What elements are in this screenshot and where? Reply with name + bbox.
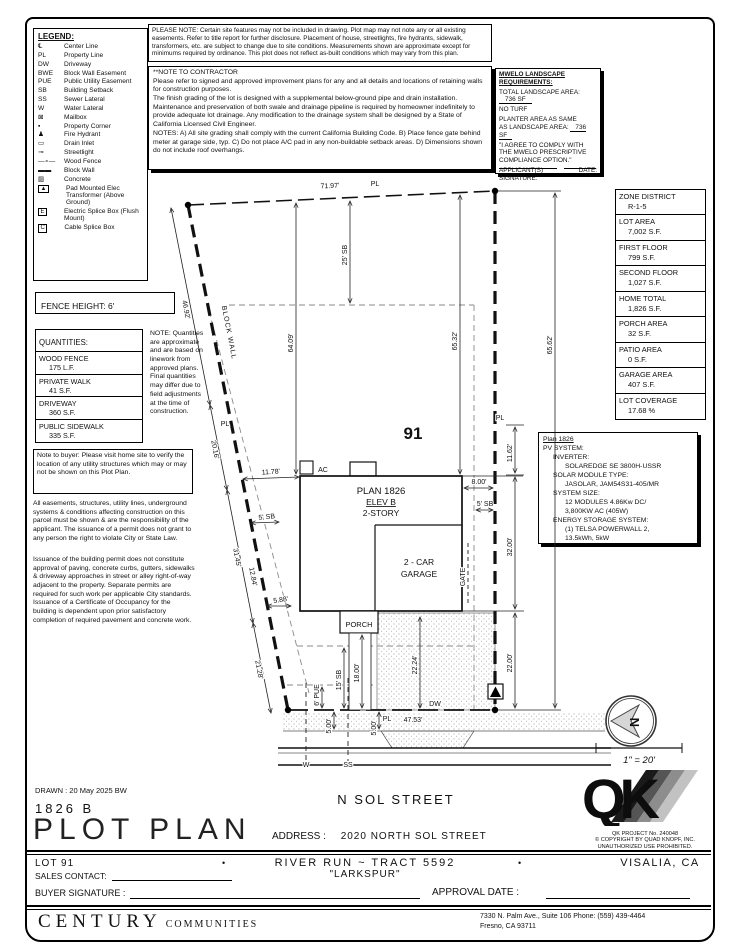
elev-label: ELEV B (366, 497, 396, 507)
svg-text:31.45': 31.45' (231, 548, 241, 568)
concrete-icon: ▨ (38, 176, 64, 183)
svg-text:W: W (303, 762, 310, 769)
svg-text:15' SB: 15' SB (336, 669, 343, 690)
property-corner (285, 707, 291, 713)
mwelo-total-value: 736 SF (499, 96, 532, 104)
svg-text:5.88': 5.88' (273, 596, 289, 605)
legend-item: —∘—Wood Fence (38, 158, 145, 165)
mwelo-total: TOTAL LANDSCAPE AREA: 736 SF (499, 89, 597, 105)
driveway-apron (381, 731, 474, 748)
svg-text:71.97': 71.97' (320, 183, 339, 191)
stat-row: ZONE DISTRICTR-1-5 (615, 189, 706, 216)
legend-item: DWDriveway (38, 61, 145, 68)
legend-item: ℄Center Line (38, 43, 145, 50)
streetlight-icon: ⊸ (38, 149, 64, 156)
date-line[interactable] (564, 167, 596, 169)
office-contact: 7330 N. Palm Ave., Suite 106 Phone: (559… (480, 912, 645, 932)
qk-copyright: © COPYRIGHT BY QUAD KNOPF, INC. (582, 837, 708, 843)
contractor-note-box: **NOTE TO CONTRACTOR Please refer to sig… (148, 66, 492, 170)
site-drawing: 71.97' PL 25' SB 64.09' 65.32' 65.62' 11… (163, 173, 613, 818)
buyer-signature-line[interactable] (130, 897, 420, 899)
svg-text:GARAGE: GARAGE (401, 569, 438, 579)
ac-pad (300, 461, 313, 474)
svg-text:65.62': 65.62' (547, 336, 554, 355)
contractor-note-p1: Please refer to signed and approved impr… (153, 78, 487, 95)
svg-text:5' SB: 5' SB (258, 513, 275, 522)
address-label: ADDRESS : (272, 831, 326, 842)
address-row: ADDRESS : 2020 NORTH SOL STREET (272, 831, 487, 842)
contractor-note-title: **NOTE TO CONTRACTOR (153, 69, 487, 78)
mwelo-title: MWELO LANDSCAPE REQUIREMENTS: (499, 71, 597, 87)
svg-text:5.00': 5.00' (326, 719, 333, 734)
block-wall-easement-symbol: BWE (38, 70, 64, 77)
street-lines (278, 748, 611, 765)
legend-item: SBBuilding Setback (38, 87, 145, 94)
legend-item: ▭Drain Inlet (38, 140, 145, 147)
garage-label: 2 - CAR (404, 557, 434, 567)
fire-hydrant-icon: ♟ (38, 131, 64, 138)
please-note-box: PLEASE NOTE: Certain site features may n… (148, 24, 492, 62)
street-name: N SOL STREET (337, 792, 454, 807)
office-address: 7330 N. Palm Ave., Suite 106 Phone: (559… (480, 912, 645, 922)
building-setback-symbol: SB (38, 87, 64, 94)
cable-splice-box-icon: C (38, 224, 47, 233)
bullet: • (222, 858, 225, 868)
svg-text:22.00': 22.00' (507, 654, 514, 673)
qk-logo-block: QK QK PROJECT No. 240048 © COPYRIGHT BY … (582, 766, 708, 850)
qk-logo: QK (582, 766, 708, 826)
buyer-signature-label: BUYER SIGNATURE : (35, 888, 125, 898)
house-bay (350, 462, 376, 476)
builder-logo: CENTURY COMMUNITIES (38, 911, 258, 933)
quantities-table: QUANTITIES: WOOD FENCE175 L.F. PRIVATE W… (35, 330, 143, 443)
sales-contact-label: SALES CONTACT: (35, 871, 107, 881)
svg-text:5.00': 5.00' (371, 721, 378, 736)
plan-label: PLAN 1826 (357, 486, 406, 497)
centerline-icon: ℄ (38, 43, 64, 50)
block-wall-label: BLOCK WALL (220, 305, 237, 360)
lot-label: LOT 91 (35, 858, 74, 869)
fence-height-text: FENCE HEIGHT: 6' (41, 301, 114, 311)
signature-line[interactable] (499, 167, 557, 169)
svg-text:8.00': 8.00' (472, 479, 487, 486)
svg-text:18.00': 18.00' (354, 664, 361, 683)
legend-item: SSSewer Lateral (38, 96, 145, 103)
please-note-text: PLEASE NOTE: Certain site features may n… (152, 27, 488, 58)
gate-label: GATE (460, 567, 467, 586)
legend-title: LEGEND: (38, 32, 145, 41)
quantity-row: DRIVEWAY360 S.F. (35, 396, 143, 420)
svg-text:PL: PL (383, 716, 392, 723)
quantity-row: PUBLIC SIDEWALK335 S.F. (35, 419, 143, 443)
left-block-wall (188, 205, 288, 710)
svg-text:PL: PL (221, 421, 230, 428)
zoning-stats-table: ZONE DISTRICTR-1-5 LOT AREA7,002 S.F. FI… (615, 190, 706, 420)
svg-text:32.00': 32.00' (507, 538, 514, 557)
legend-item: ♟Fire Hydrant (38, 131, 145, 138)
svg-text:PL: PL (496, 415, 505, 422)
legend-item: ▪Property Corner (38, 123, 145, 130)
legend-item: PLProperty Line (38, 52, 145, 59)
quantity-row: PRIVATE WALK41 S.F. (35, 374, 143, 398)
ac-label: AC (318, 467, 328, 474)
stat-row: PATIO AREA0 S.F. (615, 342, 706, 369)
legend-item: ▨Concrete (38, 176, 145, 183)
plot-plan-sheet: LEGEND: ℄Center Line PLProperty Line DWD… (0, 0, 734, 945)
legend-item: BWEBlock Wall Easement (38, 70, 145, 77)
rear-property-line (188, 191, 495, 205)
driveway (377, 613, 495, 710)
fence-height-box: FENCE HEIGHT: 6' (35, 292, 175, 314)
svg-text:6' PUE: 6' PUE (314, 684, 321, 706)
stat-row: LOT COVERAGE17.68 % (615, 393, 706, 420)
mwelo-planter: AS LANDSCAPE AREA: 736 SF (499, 124, 597, 140)
legend-item: ▬▬Block Wall (38, 167, 145, 174)
divider (27, 850, 711, 855)
stat-row: PORCH AREA32 S.F. (615, 316, 706, 343)
public-utility-easement-symbol: PUE (38, 78, 64, 85)
pad-transformer (488, 684, 503, 699)
legend-item: ▲Pad Mounted Elec Transformer (Above Gro… (38, 185, 145, 207)
stat-row: HOME TOTAL1,826 S.F. (615, 291, 706, 318)
legend-item: EElectric Splice Box (Flush Mount) (38, 208, 145, 223)
svg-text:DW: DW (429, 701, 441, 708)
svg-text:65.32': 65.32' (452, 332, 459, 351)
approval-date-label: APPROVAL DATE : (432, 887, 519, 898)
svg-text:12.84': 12.84' (247, 567, 257, 587)
quantity-row: WOOD FENCE175 L.F. (35, 351, 143, 375)
svg-text:46.92': 46.92' (180, 300, 190, 320)
mwelo-no-turf: NO TURF (499, 106, 597, 114)
mwelo-box: MWELO LANDSCAPE REQUIREMENTS: TOTAL LAND… (495, 68, 601, 174)
scale-bar: 1" = 20' (592, 740, 692, 768)
porch-label: PORCH (345, 620, 372, 629)
legend-box: LEGEND: ℄Center Line PLProperty Line DWD… (33, 28, 148, 281)
legend-item: ⊸Streetlight (38, 149, 145, 156)
city-label: VISALIA, CA (608, 857, 712, 869)
legend-item: PUEPublic Utility Easement (38, 78, 145, 85)
svg-text:11.62': 11.62' (507, 444, 514, 462)
block-wall-icon: ▬▬ (38, 167, 64, 174)
drain-inlet-icon: ▭ (38, 140, 64, 147)
svg-text:22.24': 22.24' (412, 656, 419, 675)
svg-text:QK: QK (582, 767, 660, 826)
svg-text:21.28': 21.28' (253, 660, 263, 680)
legend-item: WWater Lateral (38, 105, 145, 112)
legend-item: CCable Splice Box (38, 224, 145, 233)
mwelo-quote: "I AGREE TO COMPLY WITH THE MWELO PRESCR… (499, 142, 597, 165)
transformer-icon: ▲ (38, 185, 49, 194)
mailbox-icon: ⊠ (38, 114, 64, 121)
contractor-note-p2: The finish grading of the lot is designe… (153, 95, 487, 130)
lot-number: 91 (404, 424, 423, 443)
property-corner (492, 188, 498, 194)
sheet-title: PLOT PLAN (33, 813, 252, 847)
svg-text:5' SB: 5' SB (477, 501, 494, 508)
property-corner (185, 202, 191, 208)
sales-contact-line[interactable] (112, 879, 232, 881)
story-label: 2-STORY (363, 508, 400, 518)
property-corner (492, 707, 498, 713)
legend-item: ⊠Mailbox (38, 114, 145, 121)
tract-label: RIVER RUN ~ TRACT 5592 (250, 857, 480, 869)
electric-splice-box-icon: E (38, 208, 47, 217)
svg-text:20.16': 20.16' (209, 440, 219, 460)
address-value: 2020 NORTH SOL STREET (341, 831, 487, 842)
stat-row: GARAGE AREA407 S.F. (615, 367, 706, 394)
svg-text:64.09': 64.09' (288, 334, 295, 353)
stat-row: LOT AREA7,002 S.F. (615, 214, 706, 241)
community-label: "LARKSPUR" (250, 869, 480, 880)
brand-communities: COMMUNITIES (166, 919, 259, 930)
stat-row: SECOND FLOOR1,027 S.F. (615, 265, 706, 292)
property-lines (185, 188, 561, 713)
north-letter: N (627, 718, 642, 727)
wood-fence-icon: —∘— (38, 158, 64, 165)
divider (27, 905, 711, 910)
svg-text:PL: PL (371, 181, 380, 188)
mwelo-planter-l1: PLANTER AREA AS SAME (499, 116, 597, 124)
stat-row: FIRST FLOOR799 S.F. (615, 240, 706, 267)
approval-date-line[interactable] (546, 897, 690, 899)
svg-text:25' SB: 25' SB (342, 244, 349, 265)
property-line-symbol: PL (38, 52, 64, 59)
bullet: • (518, 858, 521, 868)
sewer-lateral-symbol: SS (38, 96, 64, 103)
office-city: Fresno, CA 93711 (480, 922, 645, 932)
svg-text:47.53': 47.53' (404, 717, 423, 724)
brand-century: CENTURY (38, 911, 162, 932)
svg-text:SS: SS (343, 762, 353, 769)
svg-text:11.78': 11.78' (262, 468, 281, 476)
water-lateral-symbol: W (38, 105, 64, 112)
quantities-header: QUANTITIES: (35, 329, 143, 353)
property-corner-icon: ▪ (38, 123, 64, 130)
drawn-by: DRAWN : 20 May 2025 BW (35, 786, 127, 795)
driveway-symbol: DW (38, 61, 64, 68)
contractor-note-p3: NOTES: A) All site grading shall comply … (153, 130, 487, 156)
scale-text: 1" = 20' (623, 755, 656, 766)
